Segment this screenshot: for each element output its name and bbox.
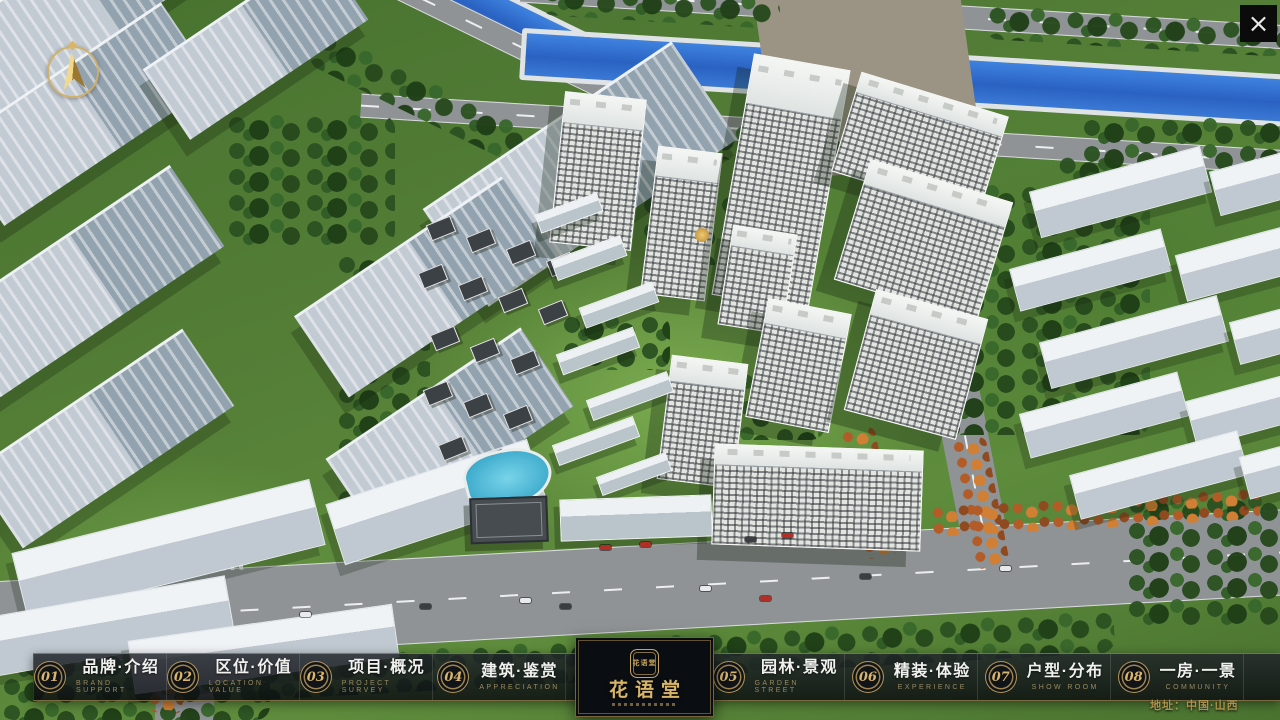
nav-label-zh: 建筑·鉴赏 <box>481 664 558 680</box>
nav-item-interior-experience[interactable]: 06 精装·体验EXPERIENCE <box>844 654 977 700</box>
car-shape <box>420 604 431 609</box>
nav-label-en: EXPERIENCE <box>898 684 967 691</box>
forest-shape <box>984 5 1280 57</box>
nav-number-badge: 04 <box>437 661 469 693</box>
brand-title: 花语堂 <box>602 681 687 700</box>
close-button[interactable]: × <box>1240 5 1277 42</box>
car-shape <box>860 574 871 579</box>
nav-item-location-value[interactable]: 02 区位·价值LOCATION VALUE <box>166 654 299 700</box>
forest-shape <box>539 0 781 29</box>
nav-label-en: COMMUNITY <box>1166 684 1231 691</box>
brand-logo-panel[interactable]: 花语堂 花语堂 <box>575 637 714 717</box>
nav-number-badge: 05 <box>713 661 745 693</box>
car-shape <box>1000 566 1011 571</box>
nav-number: 04 <box>444 671 462 684</box>
nav-number: 01 <box>41 671 59 684</box>
nav-number: 02 <box>174 671 192 684</box>
nav-number: 06 <box>859 671 877 684</box>
nav-number: 03 <box>307 671 325 684</box>
nav-item-garden-landscape[interactable]: 05 园林·景观GARDEN STREET <box>712 654 845 700</box>
nav-label-zh: 园林·景观 <box>761 660 838 676</box>
nav-number: 07 <box>992 671 1010 684</box>
nav-number-badge: 01 <box>34 661 66 693</box>
compass-needle <box>60 51 85 90</box>
car-shape <box>520 598 531 603</box>
nav-label-zh: 区位·价值 <box>215 660 292 676</box>
nav-number-badge: 02 <box>167 661 199 693</box>
nav-number-badge: 06 <box>852 661 884 693</box>
car-shape <box>760 596 771 601</box>
tower-shape <box>549 91 646 251</box>
forest-shape <box>225 115 395 245</box>
project-address: 地址：中国·山西 <box>1150 701 1239 712</box>
car-shape <box>300 612 311 617</box>
nav-item-brand-intro[interactable]: 01 品牌·介绍BRAND SUPPORT <box>33 654 166 700</box>
nav-label-en: PROJECT SURVEY <box>342 680 432 694</box>
mid-shape <box>596 452 672 496</box>
close-icon: × <box>1248 11 1270 37</box>
nav-label-zh: 品牌·介绍 <box>83 660 160 676</box>
site-plan-render <box>0 0 1280 720</box>
nav-label-en: SHOW ROOM <box>1032 684 1099 691</box>
nav-label-en: BRAND SUPPORT <box>76 680 166 694</box>
nav-item-one-room-one-view[interactable]: 08 一房·一景COMMUNITY <box>1110 654 1243 700</box>
car-shape <box>782 533 793 538</box>
tower-shape <box>711 443 923 551</box>
car-shape <box>640 542 651 547</box>
mid-shape <box>586 371 674 421</box>
goldspot-shape <box>695 228 709 242</box>
nav-item-project-overview[interactable]: 03 项目·概况PROJECT SURVEY <box>299 654 432 700</box>
mid-shape <box>552 416 640 466</box>
car-shape <box>745 537 756 542</box>
gate-shape <box>469 496 549 545</box>
nav-item-architecture-appreciation[interactable]: 04 建筑·鉴赏APPRECIATION <box>432 654 565 700</box>
car-shape <box>600 545 611 550</box>
mid-shape <box>559 494 712 541</box>
nav-number-badge: 07 <box>985 661 1017 693</box>
nav-label-zh: 一房·一景 <box>1160 664 1237 680</box>
nav-item-unit-distribution[interactable]: 07 户型·分布SHOW ROOM <box>977 654 1110 700</box>
compass-north-icon <box>47 46 99 98</box>
brand-seal-icon: 花语堂 <box>630 649 659 678</box>
nav-label-zh: 精装·体验 <box>894 664 971 680</box>
nav-number-badge: 03 <box>300 661 332 693</box>
nav-label-en: LOCATION VALUE <box>209 680 299 694</box>
car-shape <box>560 604 571 609</box>
ctx2-shape <box>1175 210 1280 301</box>
car-shape <box>700 586 711 591</box>
brand-tagline-rule <box>612 703 678 706</box>
nav-label-en: GARDEN STREET <box>755 680 845 694</box>
nav-label-en: APPRECIATION <box>479 684 559 691</box>
ctx2-shape <box>1229 283 1280 365</box>
nav-number: 05 <box>719 671 737 684</box>
app-window: × 01 品牌·介绍BRAND SUPPORT 02 区位·价值LOCATION… <box>0 0 1280 720</box>
nav-label-zh: 项目·概况 <box>348 660 425 676</box>
nav-end-segment <box>1243 654 1280 700</box>
nav-number-badge: 08 <box>1118 661 1150 693</box>
nav-label-zh: 户型·分布 <box>1027 664 1104 680</box>
nav-number: 08 <box>1125 671 1143 684</box>
